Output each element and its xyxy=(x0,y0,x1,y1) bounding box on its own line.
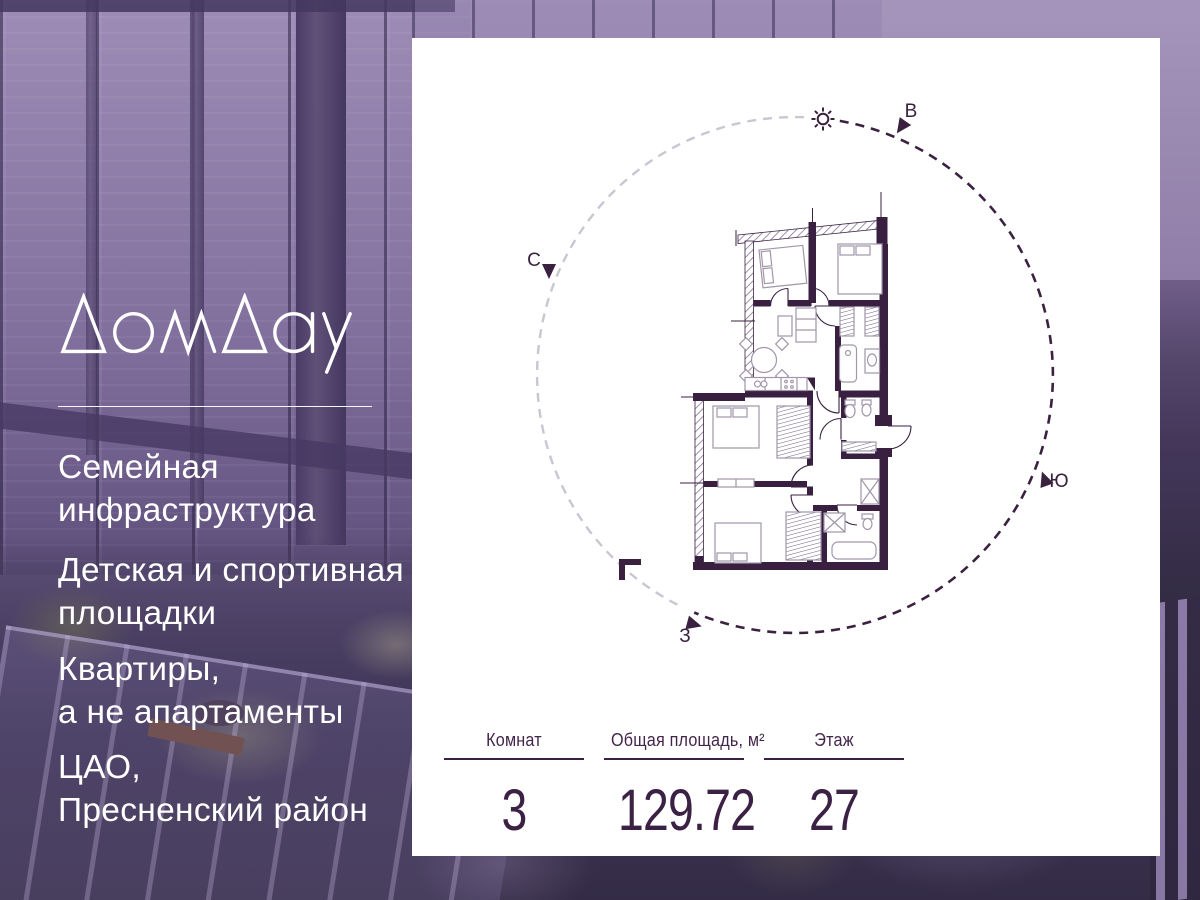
compass-label-east: В xyxy=(898,101,924,125)
feature-line: Пресненский район xyxy=(58,789,428,832)
feature-playgrounds: Детская и спортивная площадки xyxy=(58,549,428,635)
compass-label-north: С xyxy=(521,250,547,274)
compass-label-west: З xyxy=(672,626,698,650)
stat-underline xyxy=(764,758,904,760)
logo-divider xyxy=(58,406,372,407)
wardrobe xyxy=(840,307,854,336)
brand-logo: ДомДау xyxy=(59,293,355,379)
wardrobe xyxy=(865,307,879,336)
feature-line: а не апартаменты xyxy=(58,691,428,734)
stat-underline xyxy=(604,758,744,760)
stat-label: Общая площадь, м² xyxy=(611,728,737,758)
feature-line: Детская и спортивная xyxy=(58,549,428,592)
feature-line: Семейная xyxy=(58,446,428,489)
feature-line: инфраструктура xyxy=(58,489,428,532)
domdau-logo-glyphs xyxy=(59,293,355,374)
plan-corner-mark xyxy=(622,562,641,580)
stat-floor: Этаж 27 xyxy=(764,728,904,840)
dining-table xyxy=(752,348,777,373)
feature-family-infrastructure: Семейная инфраструктура xyxy=(58,446,428,532)
ad-banner: ДомДау Семейная инфраструктура Детская и… xyxy=(0,0,1200,900)
toilet xyxy=(845,405,855,418)
floor-plan xyxy=(680,192,911,570)
bed-top-right xyxy=(838,244,882,294)
feature-line: Квартиры, xyxy=(58,648,428,691)
compass-label-south: Ю xyxy=(1046,471,1072,495)
stat-area: Общая площадь, м² 129.72 xyxy=(604,728,744,840)
feature-line: ЦАО, xyxy=(58,746,428,789)
stat-label: Этаж xyxy=(771,728,897,758)
stat-rooms: Комнат 3 xyxy=(444,728,584,840)
shelf-unit xyxy=(796,308,816,342)
bed-top-left xyxy=(759,245,807,287)
feature-line: площадки xyxy=(58,592,428,635)
sun-icon xyxy=(812,108,835,131)
bed-middle-left xyxy=(713,406,759,448)
stat-underline xyxy=(444,758,584,760)
closet xyxy=(777,406,810,458)
sink xyxy=(863,519,872,530)
feature-district: ЦАО, Пресненский район xyxy=(58,746,428,832)
closet xyxy=(786,512,821,560)
floorplan-card: В С Ю З Комнат 3 Общая площадь, м² 129.7… xyxy=(412,38,1160,856)
stat-value: 27 xyxy=(778,782,890,840)
stat-value: 3 xyxy=(458,782,570,840)
feature-flats-not-apartments: Квартиры, а не апартаменты xyxy=(58,648,428,734)
stat-label: Комнат xyxy=(451,728,577,758)
bathtub xyxy=(832,542,876,559)
side-table xyxy=(778,316,792,336)
stat-value: 129.72 xyxy=(618,782,730,840)
bed-bottom-left xyxy=(715,523,761,563)
bidet xyxy=(862,404,871,416)
